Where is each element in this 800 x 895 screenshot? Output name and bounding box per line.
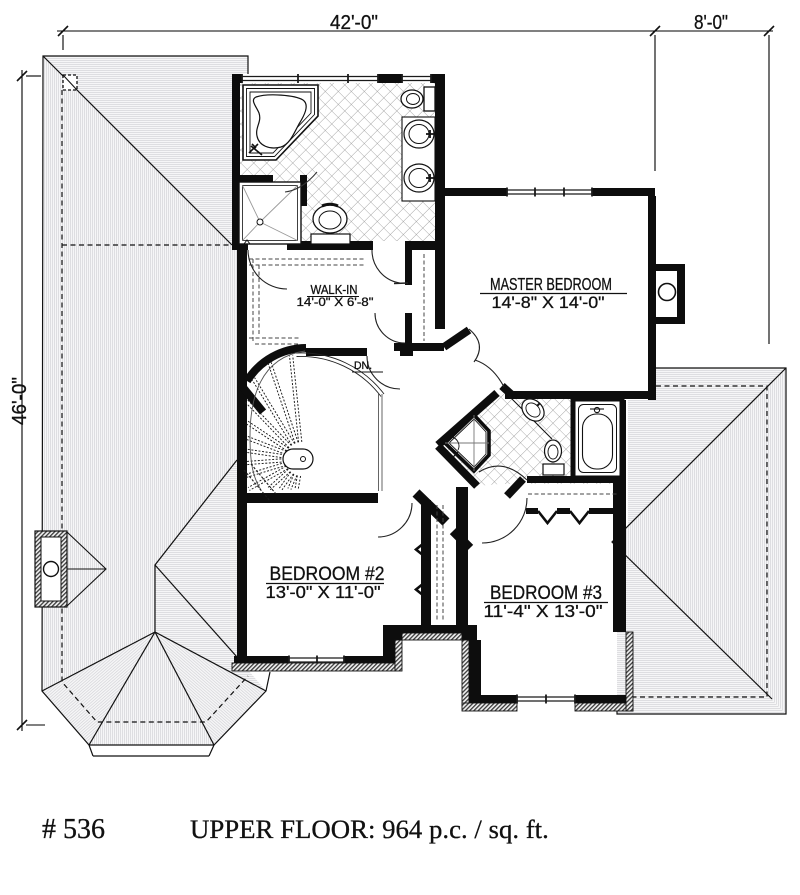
svg-text:13'-0" X 11'-0": 13'-0" X 11'-0" — [266, 582, 381, 602]
svg-text:14'-8" X 14'-0": 14'-8" X 14'-0" — [492, 293, 605, 312]
svg-text:46'-0": 46'-0" — [9, 377, 31, 425]
svg-text:8'-0": 8'-0" — [694, 12, 728, 34]
svg-text:# 536: # 536 — [42, 814, 105, 845]
svg-text:UPPER FLOOR: 964 p.c. / sq. ft: UPPER FLOOR: 964 p.c. / sq. ft. — [190, 814, 549, 844]
svg-text:DN.: DN. — [354, 360, 372, 372]
svg-text:42'-0": 42'-0" — [330, 12, 378, 34]
svg-text:11'-4" X 13'-0": 11'-4" X 13'-0" — [484, 601, 603, 621]
svg-text:MASTER BEDROOM: MASTER BEDROOM — [490, 274, 612, 294]
svg-text:14'-0" X 6'-8": 14'-0" X 6'-8" — [297, 297, 374, 309]
svg-text:WALK-IN: WALK-IN — [311, 283, 358, 297]
